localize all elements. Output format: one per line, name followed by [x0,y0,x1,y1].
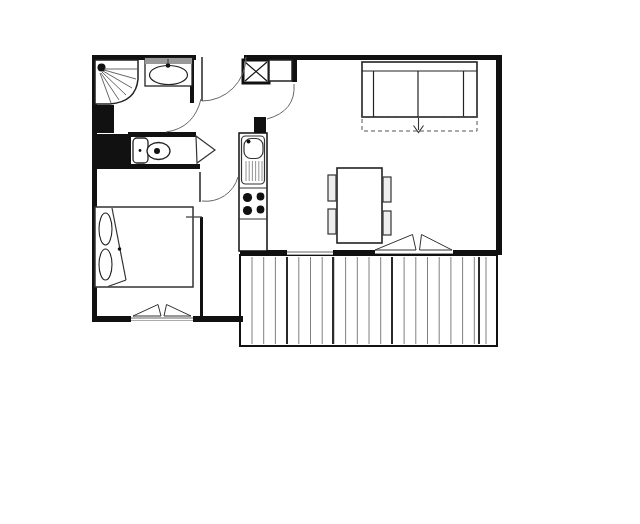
wall-bedroom-partition [200,217,203,316]
toilet-cistern-dot [139,149,142,152]
wall-bedroom-south-right [193,316,243,322]
wall-living-south-3 [453,250,502,255]
wall-kitchen-stub [254,117,266,133]
wc-door-leaf [196,136,215,163]
casement-living-right [420,235,453,251]
kitchen-sink-faucet [247,140,251,144]
bed-fold-dot [118,247,122,251]
casement-bedroom-right [164,305,191,317]
casement-bedroom-left [133,305,161,317]
kitchen-burner-4 [257,206,265,214]
closet-shelf [269,60,292,81]
wall-shower-block [92,105,114,133]
chair-left-2 [328,209,336,234]
chair-left-1 [328,175,336,201]
entry-door-swing [202,57,246,101]
wall-wc-block [92,134,131,164]
sofa-body [362,62,477,117]
floor-plan [0,0,640,524]
floor-plan-elements [92,55,502,346]
living-door-swing [267,84,294,119]
bathroom-door-swing [166,99,201,132]
wall-bedroom-south-left [92,316,131,322]
kitchen-burner-1 [243,193,252,202]
washbasin-bowl [150,66,188,85]
kitchen-burner-2 [257,193,265,201]
dining-table [337,168,382,243]
bed-pillow-2 [99,249,112,280]
kitchen-burner-3 [243,206,252,215]
chair-right-1 [383,177,391,202]
wall-right [496,55,502,255]
wall-living-south-2 [333,250,375,255]
toilet-bowl-dot [154,148,160,154]
wall-wc-south [92,164,200,169]
chair-right-2 [383,211,391,235]
bed-pillow-1 [99,213,112,245]
sofa-bed-extension [362,117,477,131]
wall-wc-north [128,132,196,137]
bedroom-door-swing [202,177,238,201]
floor-plan-page [0,0,640,524]
washbasin-faucet [166,63,171,68]
